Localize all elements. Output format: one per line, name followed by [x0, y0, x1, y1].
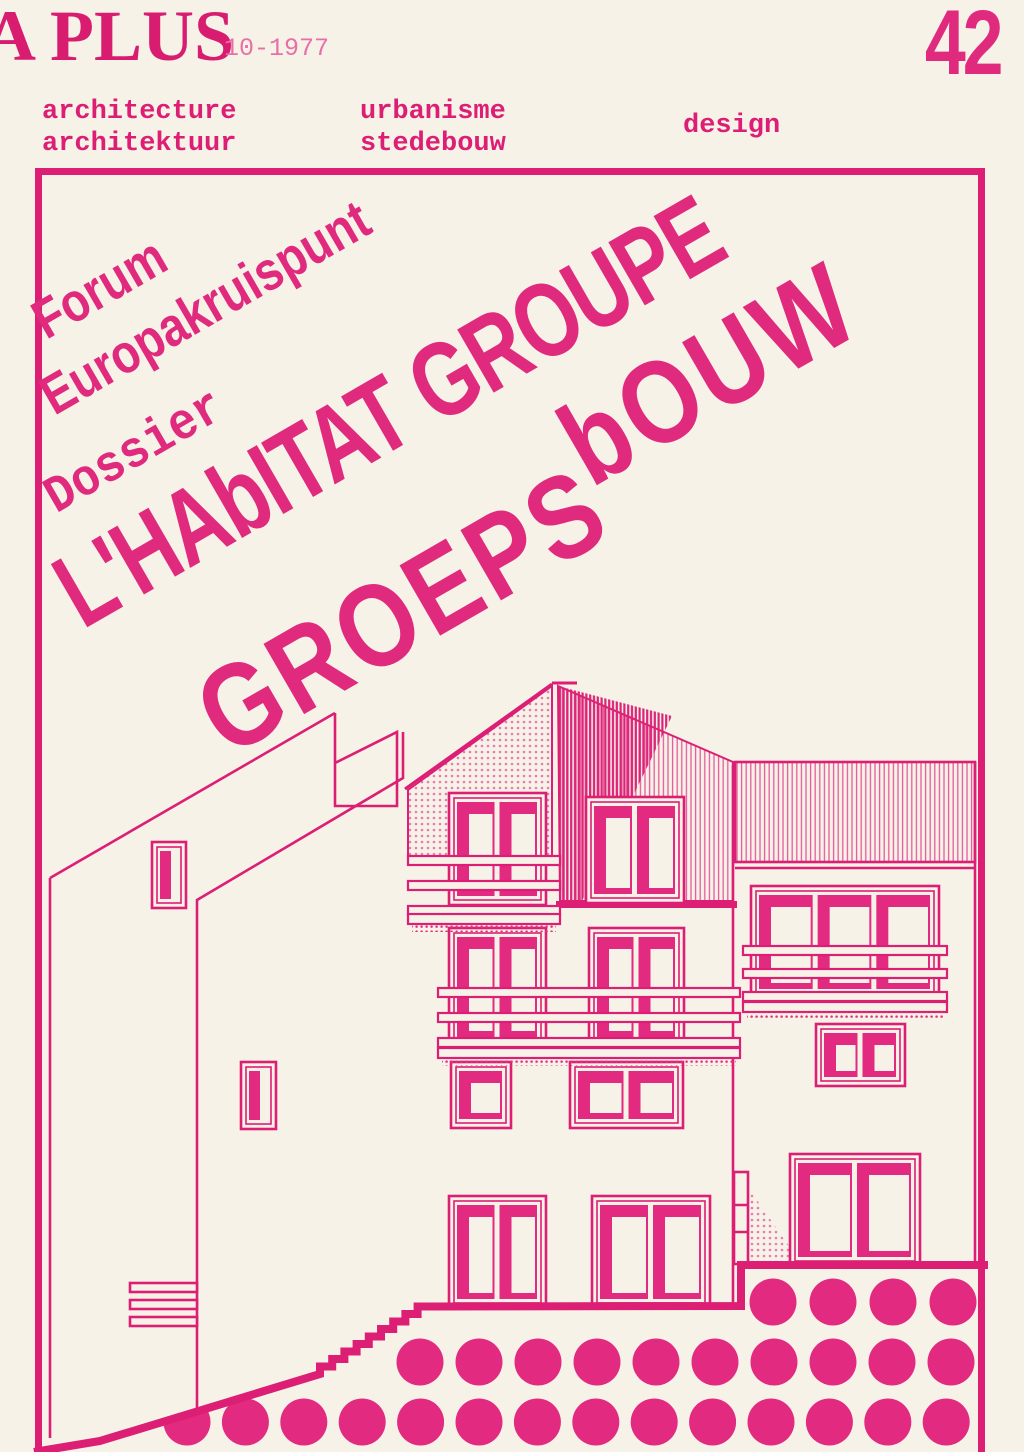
- ground-dot: [397, 1399, 444, 1446]
- ground-dot: [928, 1339, 975, 1386]
- ground-dot: [930, 1279, 977, 1326]
- ground-dot: [456, 1399, 503, 1446]
- ground-dot: [864, 1399, 911, 1446]
- window: [152, 842, 186, 908]
- window: [570, 1062, 683, 1128]
- left-house: [50, 713, 403, 1438]
- window: [592, 1196, 710, 1308]
- ground-dot: [750, 1279, 797, 1326]
- ground-dot: [692, 1339, 739, 1386]
- ground-dot: [689, 1399, 736, 1446]
- ground-dot: [515, 1339, 562, 1386]
- ground-dot: [923, 1399, 970, 1446]
- ground-dot: [397, 1339, 444, 1386]
- ground-dot: [280, 1399, 327, 1446]
- ground-dot: [810, 1339, 857, 1386]
- window: [586, 797, 684, 903]
- ground-dot: [339, 1399, 386, 1446]
- window: [790, 1154, 920, 1266]
- ground-dot: [810, 1279, 857, 1326]
- ground-dot: [748, 1399, 795, 1446]
- window: [451, 1062, 511, 1128]
- ground-dot: [806, 1399, 853, 1446]
- ground-dot: [456, 1339, 503, 1386]
- ground-dot: [870, 1279, 917, 1326]
- window: [751, 886, 939, 998]
- ground-dot: [869, 1339, 916, 1386]
- ground-dot: [631, 1399, 678, 1446]
- ground-dot: [751, 1339, 798, 1386]
- ground-dot: [514, 1399, 561, 1446]
- ground-dot: [574, 1339, 621, 1386]
- magazine-cover: A PLUS 10-1977 42 architecture architekt…: [0, 0, 1024, 1452]
- window: [241, 1062, 276, 1129]
- ground-dot: [633, 1339, 680, 1386]
- ground-dot: [572, 1399, 619, 1446]
- window: [449, 1196, 546, 1308]
- illustration-svg: [0, 0, 1024, 1452]
- window: [816, 1024, 905, 1086]
